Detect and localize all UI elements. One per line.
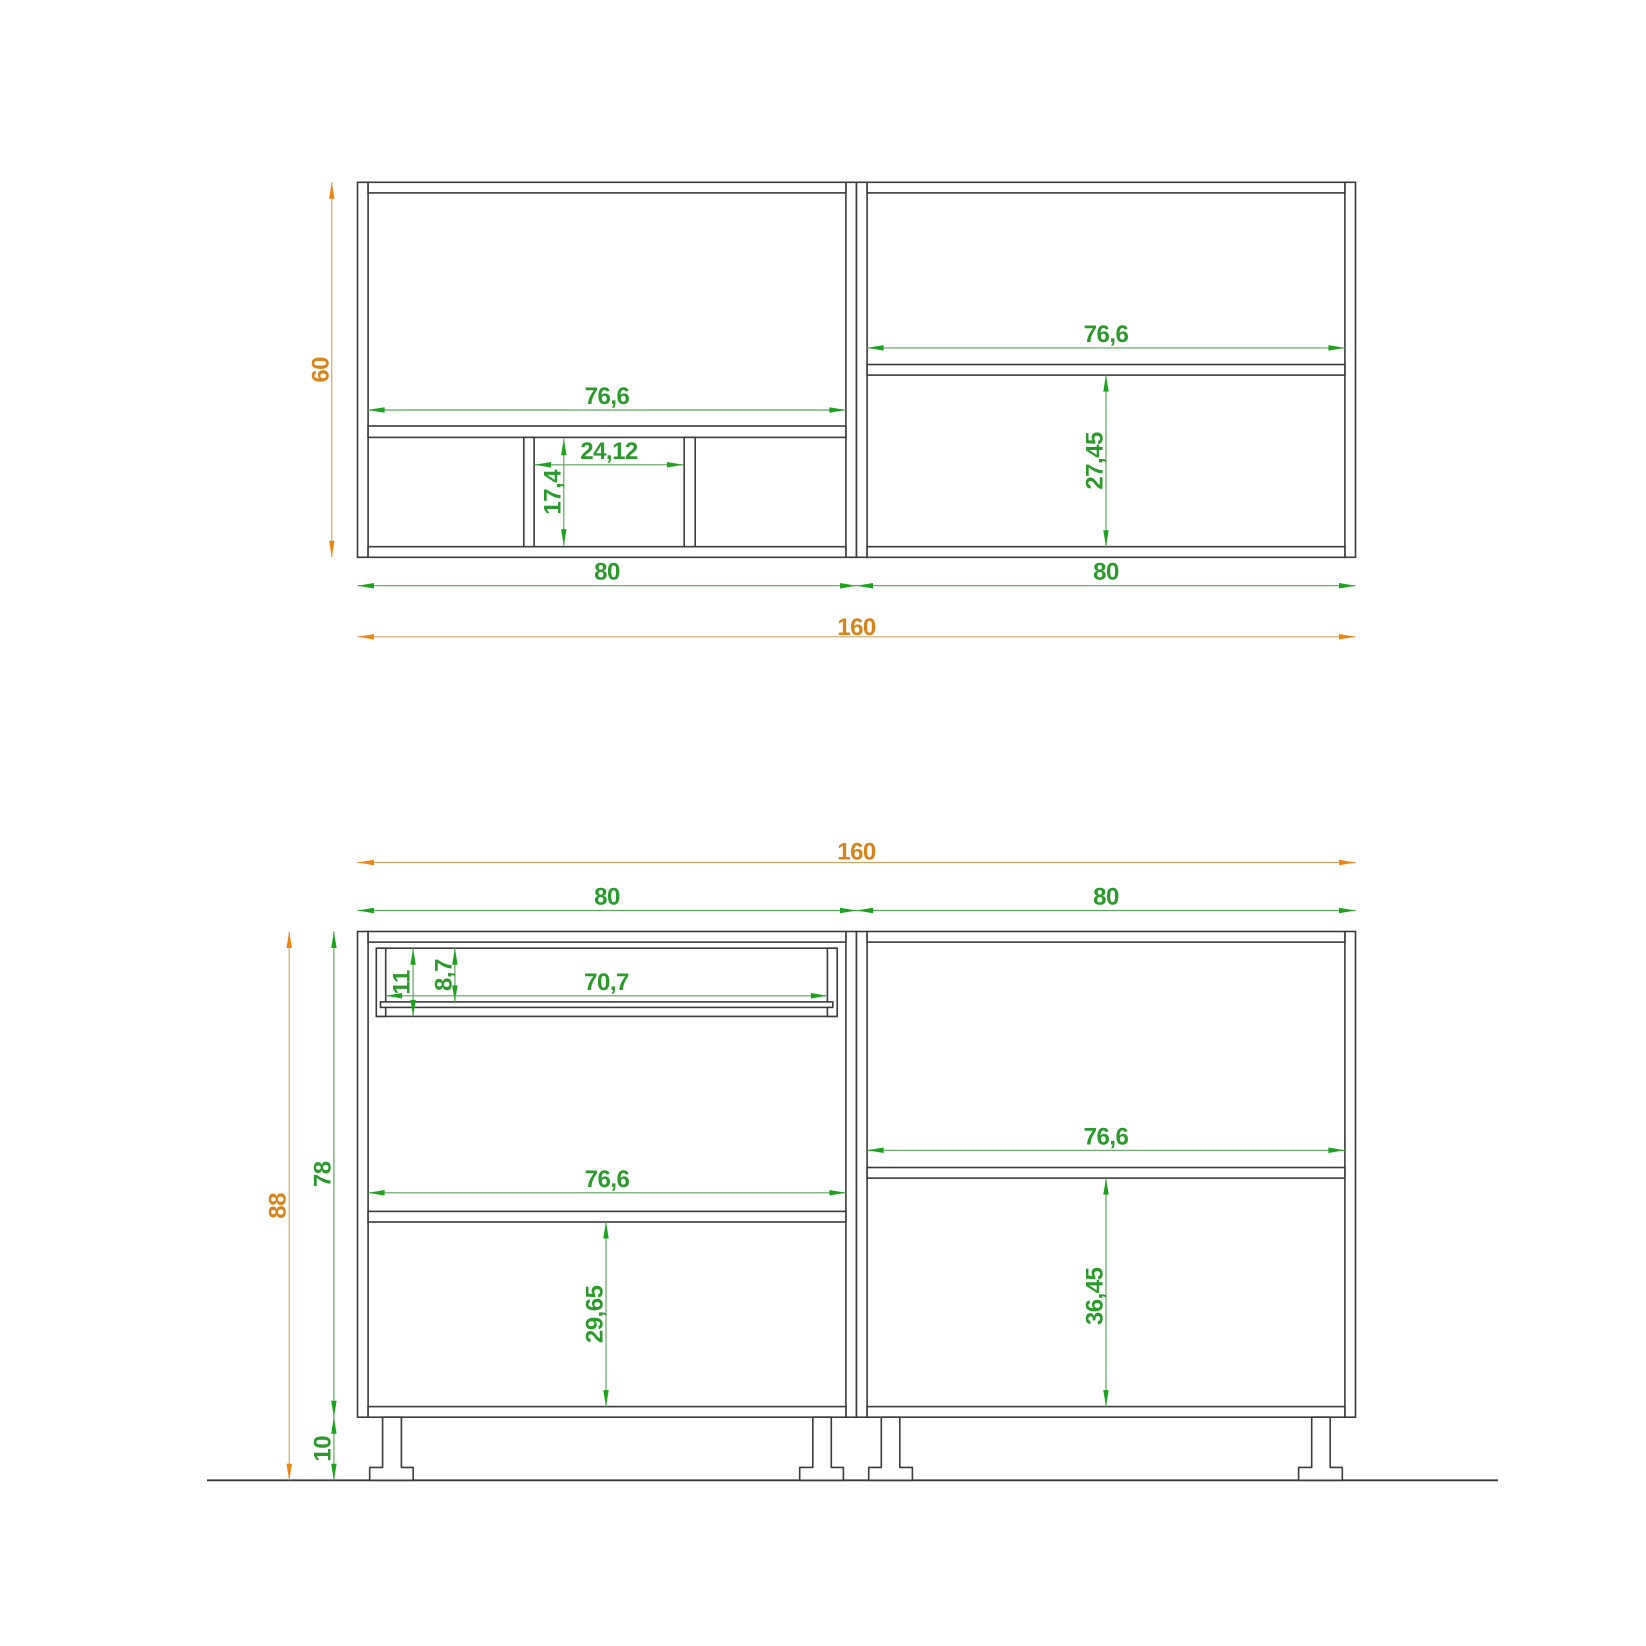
svg-text:24,12: 24,12 (580, 438, 638, 465)
svg-text:88: 88 (265, 1193, 292, 1219)
svg-text:76,6: 76,6 (1084, 321, 1129, 348)
svg-text:11: 11 (389, 970, 416, 995)
svg-text:160: 160 (837, 839, 876, 866)
svg-text:80: 80 (594, 884, 620, 911)
svg-text:60: 60 (307, 357, 334, 383)
svg-text:76,6: 76,6 (585, 1166, 630, 1193)
svg-text:70,7: 70,7 (584, 969, 629, 996)
svg-text:8,7: 8,7 (430, 959, 457, 991)
svg-text:80: 80 (1093, 559, 1119, 586)
svg-text:17,4: 17,4 (539, 469, 566, 515)
svg-text:29,65: 29,65 (582, 1285, 609, 1343)
svg-text:76,6: 76,6 (1084, 1123, 1129, 1150)
svg-text:76,6: 76,6 (585, 383, 630, 410)
svg-text:78: 78 (309, 1161, 336, 1187)
svg-text:80: 80 (594, 559, 620, 586)
svg-text:80: 80 (1093, 884, 1119, 911)
svg-text:27,45: 27,45 (1082, 432, 1109, 490)
svg-text:160: 160 (837, 614, 876, 641)
svg-text:36,45: 36,45 (1082, 1267, 1109, 1325)
svg-text:10: 10 (309, 1436, 336, 1462)
